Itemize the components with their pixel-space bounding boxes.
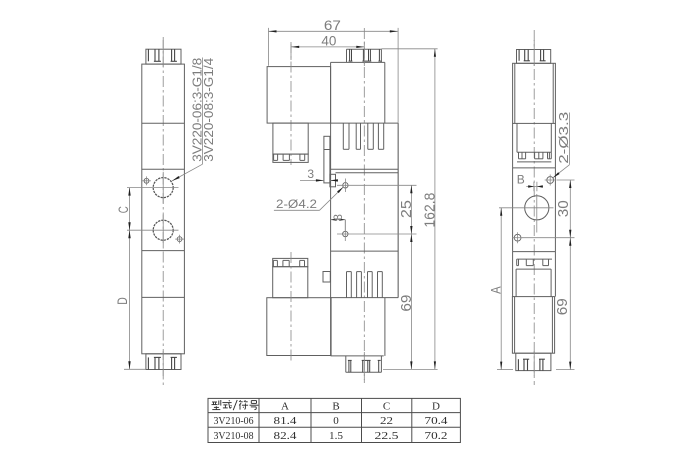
svg-text:81.4: 81.4: [274, 415, 298, 427]
svg-text:D: D: [115, 297, 130, 305]
svg-text:3V210-08: 3V210-08: [214, 430, 254, 442]
svg-text:1.5: 1.5: [329, 430, 344, 442]
svg-text:70.2: 70.2: [425, 430, 448, 442]
svg-text:22: 22: [380, 415, 393, 427]
svg-text:C: C: [116, 206, 131, 213]
svg-text:69: 69: [555, 298, 571, 315]
svg-text:40: 40: [321, 34, 336, 49]
svg-text:3: 3: [307, 167, 315, 181]
svg-text:69: 69: [398, 295, 415, 312]
svg-text:82.4: 82.4: [274, 430, 298, 442]
svg-text:70.4: 70.4: [425, 415, 449, 427]
svg-text:8: 8: [333, 213, 345, 221]
svg-text:67: 67: [324, 17, 341, 33]
svg-text:162.8: 162.8: [422, 193, 439, 228]
svg-text:D: D: [432, 401, 440, 413]
svg-text:0: 0: [333, 415, 339, 427]
svg-text:3V210-06: 3V210-06: [214, 415, 254, 427]
svg-text:2-Ø4.2: 2-Ø4.2: [276, 197, 317, 211]
svg-text:22.5: 22.5: [375, 430, 400, 442]
svg-text:A: A: [488, 286, 503, 294]
svg-text:C: C: [383, 401, 390, 413]
svg-text:A: A: [281, 401, 289, 413]
svg-text:30: 30: [556, 200, 572, 217]
svg-text:25: 25: [398, 200, 415, 218]
svg-text:3V220-08:3-G1/4: 3V220-08:3-G1/4: [201, 58, 216, 162]
svg-text:B: B: [517, 172, 525, 186]
svg-text:B: B: [332, 401, 339, 413]
